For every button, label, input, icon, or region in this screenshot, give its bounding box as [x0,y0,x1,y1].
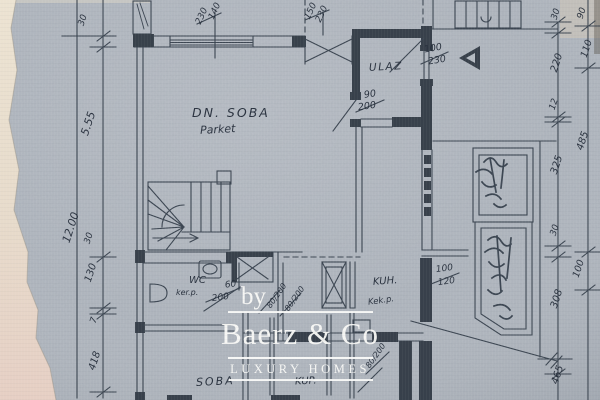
room-label-soba: SOBA [196,375,235,388]
watermark-rule-mid [228,357,373,359]
watermark-rule-top [228,311,373,313]
watermark-by: by [241,283,266,311]
label-hall-door-width: 90 [363,89,376,100]
label-hall-door-height: 200 [357,101,376,113]
scanned-floorplan-page: 30 5.55 12.00 30 130 7 418 30 90 110 220… [0,0,600,400]
room-label-dn-soba: DN. SOBA [192,107,270,120]
room-label-wc: WC [189,276,206,286]
room-label-wc-floor: ker.p. [176,289,198,297]
room-label-ulaz: ULAZ [369,61,403,73]
watermark-tagline: LUXURY HOMES [230,362,370,377]
watermark-rule-bottom [229,379,373,381]
watermark-brand: Baerz & Co [221,316,379,352]
label-wc-door-width: 60 [224,280,237,291]
room-label-dn-soba-floor: Parket [200,123,236,136]
room-label-kuh: KUH. [373,276,398,288]
